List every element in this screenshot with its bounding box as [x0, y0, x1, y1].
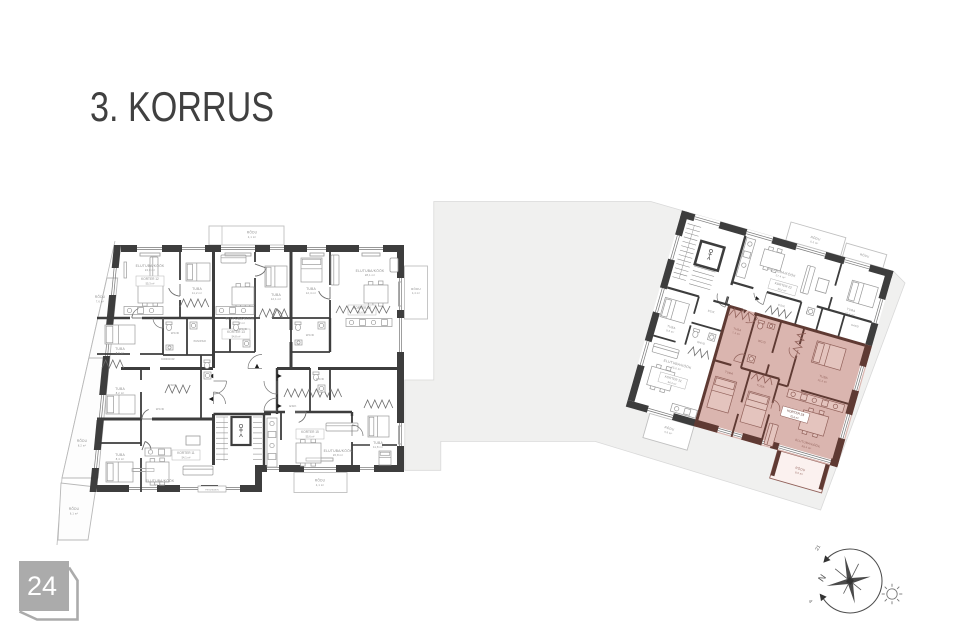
svg-text:11,8 m²: 11,8 m²: [373, 445, 383, 449]
svg-text:TUBA: TUBA: [115, 453, 125, 457]
svg-text:4,1 m²: 4,1 m²: [316, 484, 324, 487]
svg-text:4,1 m²: 4,1 m²: [248, 236, 256, 239]
svg-text:12,4 m²: 12,4 m²: [306, 291, 316, 295]
svg-text:KORTER 15: KORTER 15: [301, 430, 319, 434]
svg-text:RÕDU: RÕDU: [411, 286, 421, 291]
svg-text:4,4 m²: 4,4 m²: [412, 292, 420, 295]
svg-text:WC/D: WC/D: [239, 327, 247, 331]
svg-text:RÕDU: RÕDU: [315, 478, 326, 483]
svg-text:6,1 m²: 6,1 m²: [70, 512, 78, 515]
svg-text:ELUTUBA/KÖÖK: ELUTUBA/KÖÖK: [226, 317, 255, 321]
svg-text:3. KORRUS: 3. KORRUS: [90, 83, 274, 130]
svg-text:TUBA: TUBA: [192, 287, 202, 291]
svg-text:7,6 m²: 7,6 m²: [96, 300, 104, 303]
svg-text:TUBA: TUBA: [271, 293, 281, 297]
svg-text:TUBA: TUBA: [373, 441, 383, 445]
svg-text:TUBA: TUBA: [306, 287, 316, 291]
svg-text:26,8 m²: 26,8 m²: [333, 453, 343, 457]
svg-text:WC/D: WC/D: [306, 333, 314, 337]
svg-text:RÕDU: RÕDU: [77, 438, 88, 443]
svg-text:WC/D: WC/D: [171, 331, 179, 335]
svg-text:RÕDU: RÕDU: [69, 506, 80, 511]
svg-text:8,2 m²: 8,2 m²: [116, 391, 125, 395]
svg-text:54,8 m²: 54,8 m²: [232, 335, 241, 339]
svg-text:24: 24: [27, 571, 57, 601]
svg-text:25,3 m²: 25,3 m²: [155, 483, 165, 487]
svg-text:KORTER 11: KORTER 11: [177, 451, 195, 455]
svg-text:RÕDU: RÕDU: [247, 230, 258, 235]
svg-text:8,4 m²: 8,4 m²: [116, 457, 125, 461]
svg-text:PANIPAIK: PANIPAIK: [194, 340, 207, 343]
svg-text:ELUTUBA/KÖÖK: ELUTUBA/KÖÖK: [324, 449, 353, 453]
svg-text:ELUTUBA/KÖÖK: ELUTUBA/KÖÖK: [356, 269, 385, 273]
svg-text:8,9 m²: 8,9 m²: [116, 351, 125, 355]
svg-text:55,6 m²: 55,6 m²: [306, 435, 315, 439]
svg-text:24,8 m²: 24,8 m²: [145, 268, 155, 272]
svg-text:ESIK: ESIK: [289, 404, 296, 408]
svg-text:28,1 m²: 28,1 m²: [365, 273, 375, 277]
svg-text:12,1 m²: 12,1 m²: [271, 297, 281, 301]
svg-text:54,1 m²: 54,1 m²: [182, 456, 191, 460]
svg-text:KORIDOR: KORIDOR: [161, 357, 175, 361]
svg-text:ELUTUBA/KÖÖK: ELUTUBA/KÖÖK: [136, 264, 165, 268]
svg-text:PESUMASIN: PESUMASIN: [205, 489, 219, 492]
svg-text:55,3 m²: 55,3 m²: [146, 282, 155, 286]
svg-text:8,2 m²: 8,2 m²: [78, 444, 86, 447]
svg-text:ELUTUBA/KÖÖK: ELUTUBA/KÖÖK: [146, 479, 175, 483]
svg-text:KORTER 12: KORTER 12: [141, 277, 159, 281]
svg-text:TUBA: TUBA: [115, 347, 125, 351]
svg-text:RÕDU: RÕDU: [95, 294, 106, 299]
svg-text:ESIK: ESIK: [168, 383, 175, 387]
svg-text:WC/D: WC/D: [156, 407, 164, 411]
svg-text:WC/D: WC/D: [316, 377, 324, 381]
svg-text:11,2 m²: 11,2 m²: [192, 291, 202, 295]
svg-text:TUBA: TUBA: [115, 387, 125, 391]
